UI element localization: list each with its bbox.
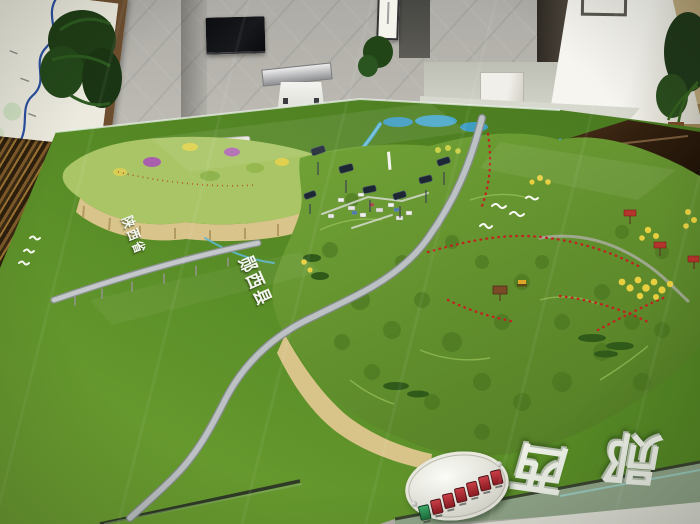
- panel-button-red: [490, 469, 504, 486]
- panel-screw: [496, 461, 503, 468]
- panel-button-red: [430, 498, 444, 515]
- brown-sign: [493, 286, 507, 294]
- terrain-model: [0, 0, 700, 524]
- yellow-excavator: [517, 280, 527, 287]
- photo-exhibition-hall: 陕西省 郧西县 西 郧: [0, 0, 700, 524]
- panel-button-red: [478, 475, 492, 492]
- panel-button-red: [466, 481, 480, 498]
- panel-button-red: [454, 486, 468, 503]
- panel-button-red: [442, 492, 456, 509]
- panel-button-green: [418, 504, 432, 521]
